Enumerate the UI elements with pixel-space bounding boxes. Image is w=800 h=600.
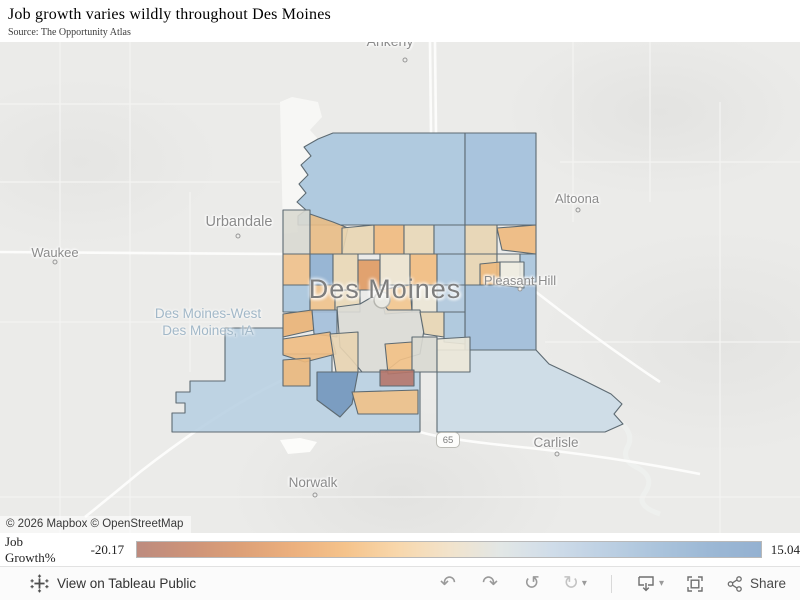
tract-e2[interactable] [330, 332, 358, 372]
tract-d3[interactable] [420, 312, 444, 337]
color-legend: Job Growth% -20.17 15.04 [0, 533, 800, 566]
tableau-embed: Job growth varies wildly throughout Des … [0, 0, 800, 600]
viz-header: Job growth varies wildly throughout Des … [0, 0, 800, 42]
tract-e3[interactable] [385, 342, 412, 374]
west-des-moines-label: Des Moines-West Des Moines, IA [155, 305, 261, 339]
route-65-shield: 65 [436, 432, 460, 448]
download-button[interactable]: ▾ [636, 572, 664, 596]
tract-a4[interactable] [374, 225, 404, 254]
redo-button[interactable]: ↷ [479, 572, 501, 596]
tract-a1[interactable] [283, 210, 310, 254]
city-label-carlisle: Carlisle [533, 435, 578, 450]
download-icon [636, 575, 656, 593]
reset-icon: ↺ [524, 574, 540, 593]
west-des-moines-label-line2: Des Moines, IA [155, 322, 261, 339]
city-dot-altoona [576, 208, 581, 213]
city-label-urbandale: Urbandale [206, 214, 273, 230]
tract-ne-large[interactable] [465, 133, 536, 225]
refresh-caret-icon: ▾ [582, 579, 587, 589]
city-dot-carlisle [555, 452, 560, 457]
tract-e4[interactable] [412, 337, 437, 372]
toolbar-separator [611, 575, 612, 593]
viz-subtitle: Source: The Opportunity Atlas [8, 27, 792, 38]
download-caret-icon: ▾ [659, 579, 664, 589]
reset-button[interactable]: ↺ [521, 572, 543, 596]
legend-min-value: -20.17 [91, 542, 125, 558]
undo-button[interactable]: ↶ [437, 572, 459, 596]
fullscreen-icon [686, 575, 704, 593]
city-dot-ankeny [403, 58, 408, 63]
share-button[interactable]: Share [726, 575, 786, 593]
tract-nw-large[interactable] [297, 133, 465, 225]
undo-icon: ↶ [440, 574, 456, 593]
city-label-norwalk: Norwalk [289, 475, 338, 490]
tableau-logo-icon [30, 574, 49, 593]
view-on-tableau-public-link[interactable]: View on Tableau Public [30, 574, 196, 593]
city-dot-pleasant-hill [518, 287, 523, 292]
viz-title: Job growth varies wildly throughout Des … [8, 6, 792, 24]
tract-f-west[interactable] [283, 358, 310, 386]
tract-c1[interactable] [283, 285, 310, 312]
tract-b1[interactable] [283, 254, 310, 285]
redo-icon: ↷ [482, 574, 498, 593]
tract-a5[interactable] [404, 225, 434, 254]
city-dot-norwalk [313, 493, 318, 498]
tableau-toolbar: View on Tableau Public ↶ ↷ ↺ ↻ ▾ ▾ [0, 566, 800, 600]
legend-gradient-bar [136, 541, 762, 558]
view-on-tableau-public-label: View on Tableau Public [57, 576, 196, 591]
city-label-waukee: Waukee [31, 245, 78, 260]
city-label-ankeny: Ankeny [367, 42, 414, 49]
tract-f-red[interactable] [380, 370, 414, 386]
map-attribution[interactable]: © 2026 Mapbox © OpenStreetMap [0, 516, 191, 533]
share-icon [726, 575, 744, 593]
tract-d1[interactable] [283, 310, 314, 337]
legend-title: Job Growth% [5, 534, 77, 566]
tract-a6[interactable] [434, 225, 465, 254]
fullscreen-button[interactable] [684, 572, 706, 596]
refresh-icon: ↻ [563, 574, 579, 593]
legend-max-value: 15.04 [771, 542, 800, 558]
tract-east-ph[interactable] [465, 285, 536, 350]
des-moines-label: Des Moines [309, 274, 462, 305]
share-label: Share [750, 576, 786, 591]
refresh-button[interactable]: ↻ ▾ [563, 572, 587, 596]
tract-a3[interactable] [342, 225, 374, 254]
choropleth-map[interactable]: AnkenyUrbandaleWaukeeAltoonaPleasant Hil… [0, 42, 800, 533]
tract-f-orange[interactable] [352, 390, 418, 414]
tract-a7[interactable] [465, 225, 497, 254]
city-dot-waukee [53, 260, 58, 265]
tract-a8[interactable] [497, 225, 536, 254]
city-dot-urbandale [236, 234, 241, 239]
city-label-altoona: Altoona [555, 191, 599, 206]
west-des-moines-label-line1: Des Moines-West [155, 305, 261, 322]
tract-e5[interactable] [437, 337, 470, 372]
